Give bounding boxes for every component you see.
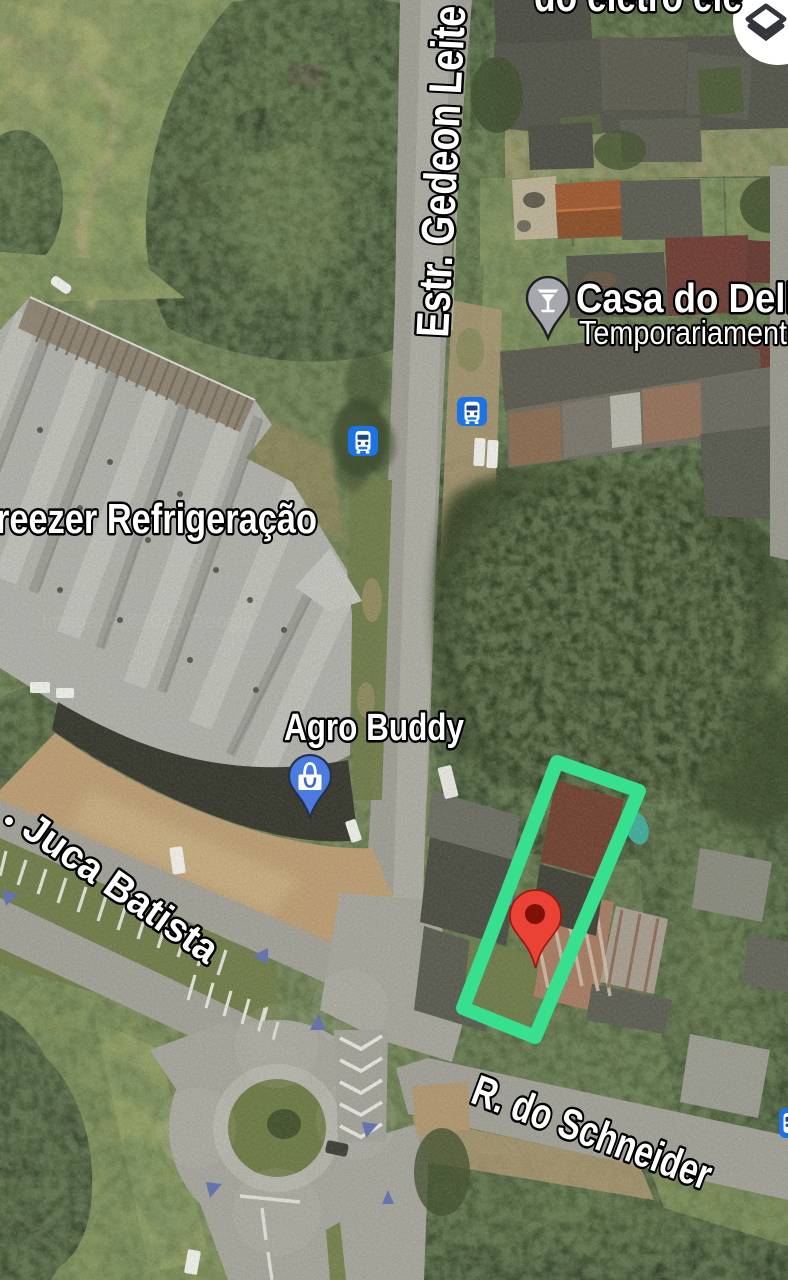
svg-text:Freezer Refrigeração: Freezer Refrigeração (0, 495, 317, 542)
svg-text:Temporariamente: Temporariamente (579, 314, 788, 351)
svg-text:Agro Buddy: Agro Buddy (284, 707, 464, 749)
svg-text:do eletro ele: do eletro ele (534, 0, 742, 21)
